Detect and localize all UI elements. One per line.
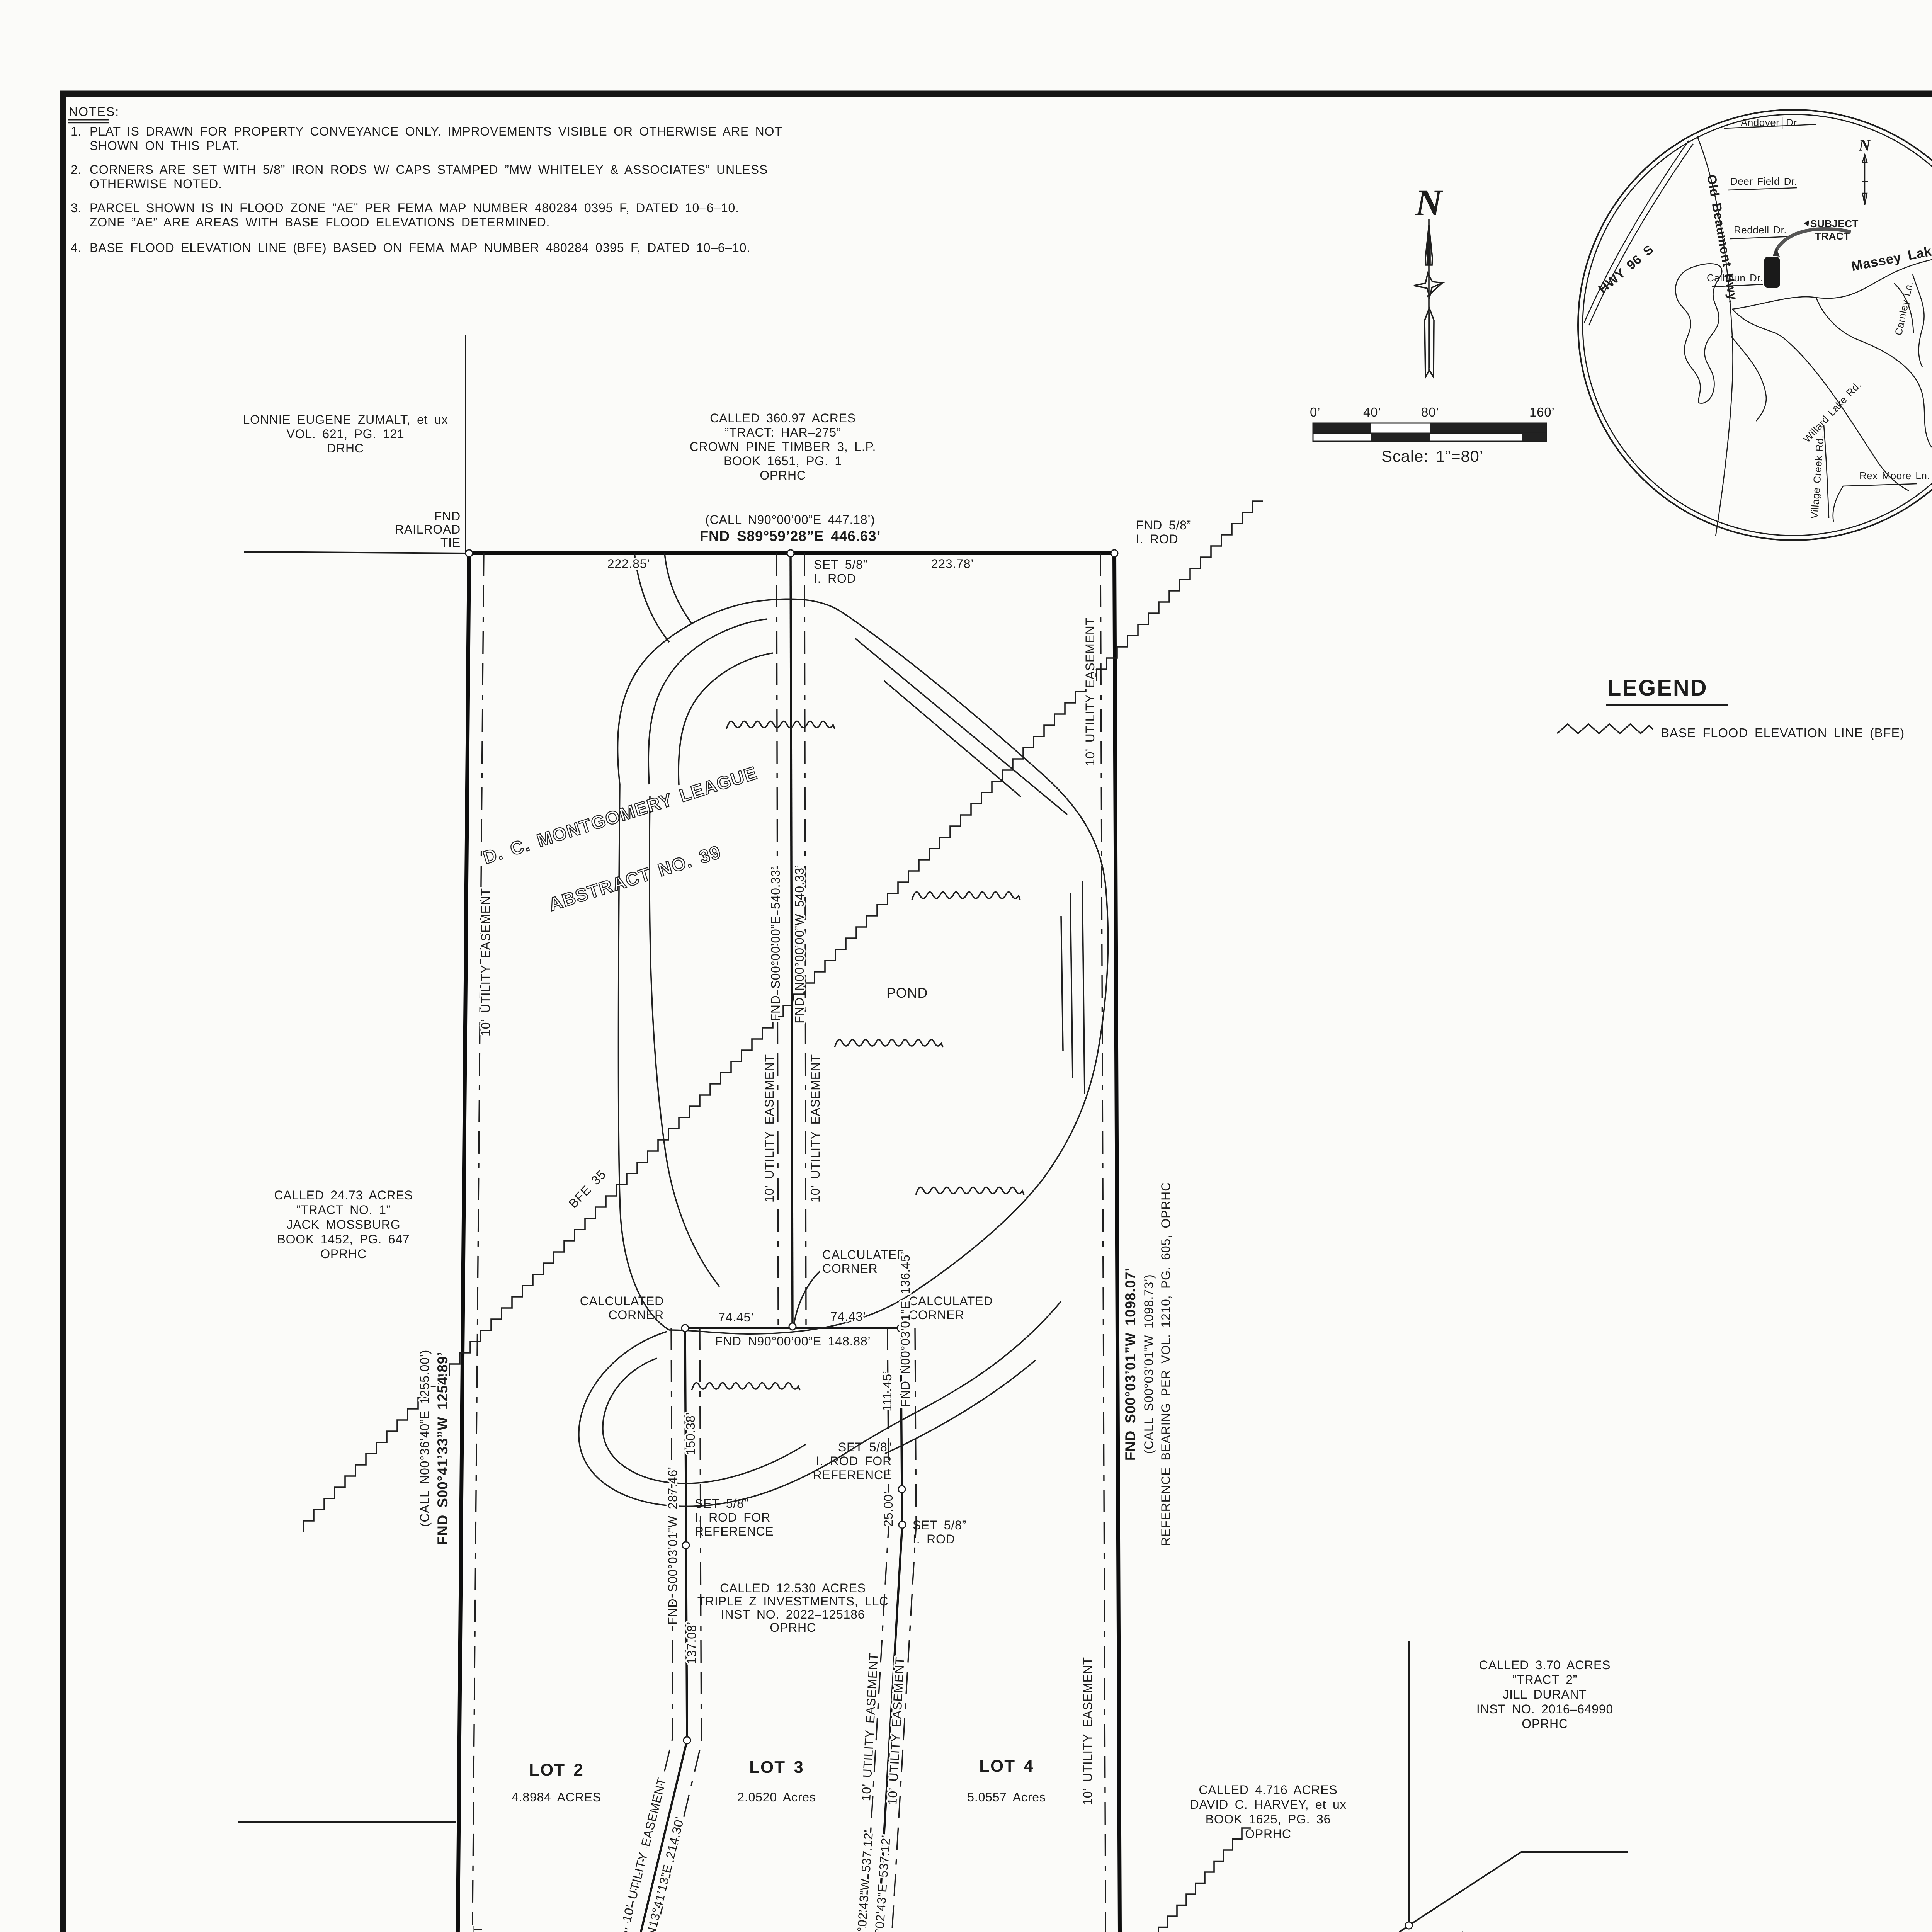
svg-text:10’ UTILITY EASEMENT: 10’ UTILITY EASEMENT bbox=[808, 1054, 822, 1202]
svg-text:(CALL N00°36’40”E 1255.00’): (CALL N00°36’40”E 1255.00’) bbox=[418, 1350, 432, 1527]
svg-text:10’ UTILITY EASEMENT: 10’ UTILITY EASEMENT bbox=[471, 1925, 485, 1932]
svg-text:FND S89°59’28”E 446.63’: FND S89°59’28”E 446.63’ bbox=[700, 528, 881, 544]
svg-text:SET 5/8”: SET 5/8” bbox=[838, 1440, 892, 1454]
svg-text:VOL. 621, PG. 121: VOL. 621, PG. 121 bbox=[287, 427, 405, 441]
svg-text:FND N00°03’01”E 136.45’: FND N00°03’01”E 136.45’ bbox=[898, 1252, 912, 1407]
svg-text:REFERENCE: REFERENCE bbox=[813, 1468, 892, 1482]
svg-text:BASE FLOOD ELEVATION LINE (BFE: BASE FLOOD ELEVATION LINE (BFE) BASED ON… bbox=[90, 241, 750, 255]
svg-text:CALCULATED: CALCULATED bbox=[580, 1294, 664, 1308]
svg-text:CALLED 3.70 ACRES: CALLED 3.70 ACRES bbox=[1479, 1658, 1611, 1672]
svg-text:10’ UTILITY EASEMENT: 10’ UTILITY EASEMENT bbox=[1083, 617, 1097, 766]
svg-text:FND S00°41’33”W 1254.89’: FND S00°41’33”W 1254.89’ bbox=[435, 1352, 451, 1545]
svg-text:10’ UTILITY EASEMENT: 10’ UTILITY EASEMENT bbox=[1081, 1657, 1095, 1805]
svg-text:10’ UTILITY EASEMENT: 10’ UTILITY EASEMENT bbox=[762, 1054, 776, 1202]
svg-text:POND: POND bbox=[886, 985, 928, 1001]
svg-text:I. ROD FOR: I. ROD FOR bbox=[695, 1510, 770, 1524]
svg-text:BOOK 1625, PG. 36: BOOK 1625, PG. 36 bbox=[1206, 1812, 1331, 1826]
svg-text:CALLED 4.716 ACRES: CALLED 4.716 ACRES bbox=[1199, 1783, 1337, 1797]
svg-text:”TRACT NO. 1”: ”TRACT NO. 1” bbox=[296, 1203, 391, 1217]
svg-text:CALCULATED: CALCULATED bbox=[909, 1294, 993, 1308]
svg-text:FND 5/8”: FND 5/8” bbox=[1136, 518, 1191, 532]
svg-text:I. ROD: I. ROD bbox=[913, 1532, 955, 1546]
svg-text:OPRHC: OPRHC bbox=[1522, 1717, 1568, 1731]
svg-text:BOOK 1651, PG. 1: BOOK 1651, PG. 1 bbox=[724, 454, 842, 468]
svg-text:1.: 1. bbox=[71, 124, 82, 138]
svg-text:137.08’: 137.08’ bbox=[685, 1622, 699, 1665]
svg-text:222.85’: 222.85’ bbox=[607, 557, 650, 571]
svg-text:N: N bbox=[1415, 182, 1444, 223]
svg-text:FND S00°03’01”W 287.46’: FND S00°03’01”W 287.46’ bbox=[666, 1466, 680, 1625]
svg-text:Rex Moore Ln.: Rex Moore Ln. bbox=[1859, 470, 1930, 481]
svg-text:DRHC: DRHC bbox=[327, 441, 364, 455]
svg-text:FND S00°03’01”W 1098.07’: FND S00°03’01”W 1098.07’ bbox=[1122, 1267, 1138, 1461]
svg-text:FND S00°00’00”E 540.33’: FND S00°00’00”E 540.33’ bbox=[769, 867, 782, 1022]
svg-text:4.: 4. bbox=[71, 241, 82, 255]
svg-text:CALCULATED: CALCULATED bbox=[822, 1248, 906, 1262]
svg-text:SET 5/8”: SET 5/8” bbox=[695, 1497, 748, 1510]
svg-text:JILL DURANT: JILL DURANT bbox=[1503, 1687, 1587, 1701]
svg-text:(CALL N90°00’00”E 447.18’): (CALL N90°00’00”E 447.18’) bbox=[705, 513, 875, 527]
svg-text:I. ROD FOR: I. ROD FOR bbox=[816, 1454, 892, 1468]
svg-text:”TRACT 2”: ”TRACT 2” bbox=[1512, 1673, 1577, 1687]
svg-text:CORNER: CORNER bbox=[822, 1262, 878, 1276]
svg-text:CALLED 12.530 ACRES: CALLED 12.530 ACRES bbox=[720, 1581, 866, 1595]
svg-text:PARCEL SHOWN IS IN FLOOD ZONE: PARCEL SHOWN IS IN FLOOD ZONE ”AE” PER F… bbox=[90, 201, 739, 215]
svg-text:Deer Field Dr.: Deer Field Dr. bbox=[1730, 175, 1797, 187]
svg-text:74.45’: 74.45’ bbox=[718, 1310, 754, 1324]
svg-text:25.00’: 25.00’ bbox=[881, 1491, 895, 1527]
svg-text:2.: 2. bbox=[71, 163, 82, 177]
svg-text:160’: 160’ bbox=[1529, 405, 1555, 419]
svg-text:LEGEND: LEGEND bbox=[1607, 675, 1708, 701]
svg-text:111.45’: 111.45’ bbox=[880, 1371, 894, 1412]
svg-text:Andover│Dr.: Andover│Dr. bbox=[1741, 117, 1799, 129]
svg-text:80’: 80’ bbox=[1421, 405, 1439, 419]
svg-text:DAVID C. HARVEY, et ux: DAVID C. HARVEY, et ux bbox=[1190, 1798, 1347, 1811]
svg-text:INST NO. 2016–64990: INST NO. 2016–64990 bbox=[1476, 1702, 1613, 1716]
svg-text:FND N90°00’00”E 148.88’: FND N90°00’00”E 148.88’ bbox=[715, 1334, 871, 1348]
svg-text:Calhoun Dr.: Calhoun Dr. bbox=[1707, 272, 1763, 284]
svg-text:5.0557 Acres: 5.0557 Acres bbox=[967, 1790, 1046, 1804]
svg-text:NOTES:: NOTES: bbox=[69, 105, 119, 119]
svg-text:OPRHC: OPRHC bbox=[320, 1247, 367, 1261]
svg-text:CALLED 24.73 ACRES: CALLED 24.73 ACRES bbox=[274, 1188, 413, 1202]
svg-text:CORNER: CORNER bbox=[609, 1308, 664, 1322]
svg-text:”TRACT: HAR–275”: ”TRACT: HAR–275” bbox=[725, 425, 841, 439]
svg-text:LONNIE EUGENE ZUMALT, et ux: LONNIE EUGENE ZUMALT, et ux bbox=[243, 413, 448, 427]
svg-text:2.0520 Acres: 2.0520 Acres bbox=[737, 1790, 816, 1804]
svg-text:Scale: 1”=80’: Scale: 1”=80’ bbox=[1381, 447, 1483, 465]
svg-text:0’: 0’ bbox=[1310, 405, 1320, 419]
svg-text:RAILROAD: RAILROAD bbox=[395, 522, 461, 536]
svg-text:FND 5/8”: FND 5/8” bbox=[1420, 1929, 1475, 1932]
svg-text:OPRHC: OPRHC bbox=[760, 468, 806, 482]
svg-text:40’: 40’ bbox=[1363, 405, 1381, 419]
svg-text:LOT 3: LOT 3 bbox=[749, 1758, 804, 1777]
svg-text:I. ROD: I. ROD bbox=[814, 571, 856, 585]
svg-text:FND: FND bbox=[434, 509, 461, 523]
svg-text:SET 5/8”: SET 5/8” bbox=[814, 558, 867, 571]
svg-text:PLAT IS DRAWN FOR PROPERTY CON: PLAT IS DRAWN FOR PROPERTY CONVEYANCE ON… bbox=[90, 124, 782, 138]
svg-text:ZONE ”AE” ARE AREAS WITH BASE: ZONE ”AE” ARE AREAS WITH BASE FLOOD ELEV… bbox=[90, 215, 550, 229]
svg-text:REFERENCE: REFERENCE bbox=[695, 1524, 774, 1538]
svg-text:LOT 2: LOT 2 bbox=[529, 1760, 584, 1779]
svg-text:SET 5/8”: SET 5/8” bbox=[913, 1518, 966, 1532]
svg-text:BASE FLOOD ELEVATION LINE (BFE: BASE FLOOD ELEVATION LINE (BFE) bbox=[1661, 726, 1905, 740]
svg-text:N: N bbox=[1858, 137, 1871, 155]
svg-text:(CALL S00°03’01”W 1098.73’): (CALL S00°03’01”W 1098.73’) bbox=[1142, 1274, 1156, 1454]
svg-text:TIE: TIE bbox=[440, 536, 461, 549]
svg-text:CORNERS ARE SET WITH 5/8” IRON: CORNERS ARE SET WITH 5/8” IRON RODS W/ C… bbox=[90, 163, 768, 177]
svg-text:150.38’: 150.38’ bbox=[684, 1412, 697, 1455]
svg-text:LOT 4: LOT 4 bbox=[979, 1757, 1034, 1776]
svg-text:TRIPLE Z INVESTMENTS, LLC: TRIPLE Z INVESTMENTS, LLC bbox=[697, 1594, 888, 1608]
svg-text:OPRHC: OPRHC bbox=[770, 1621, 816, 1634]
svg-text:JACK MOSSBURG: JACK MOSSBURG bbox=[287, 1218, 401, 1231]
svg-text:Reddell Dr.: Reddell Dr. bbox=[1734, 224, 1787, 236]
svg-text:CROWN PINE TIMBER 3, L.P.: CROWN PINE TIMBER 3, L.P. bbox=[690, 440, 876, 454]
svg-text:74.43’: 74.43’ bbox=[830, 1310, 866, 1323]
svg-text:OTHERWISE NOTED.: OTHERWISE NOTED. bbox=[90, 177, 222, 191]
svg-text:SHOWN ON THIS PLAT.: SHOWN ON THIS PLAT. bbox=[90, 139, 240, 153]
svg-text:10’ UTILITY EASEMENT: 10’ UTILITY EASEMENT bbox=[479, 888, 493, 1036]
svg-text:3.: 3. bbox=[71, 201, 82, 215]
svg-text:BOOK 1452, PG. 647: BOOK 1452, PG. 647 bbox=[277, 1232, 410, 1246]
svg-text:I. ROD: I. ROD bbox=[1136, 532, 1179, 546]
svg-text:REFERENCE BEARING PER VOL. 121: REFERENCE BEARING PER VOL. 1210, PG. 605… bbox=[1159, 1182, 1173, 1546]
svg-text:OPRHC: OPRHC bbox=[1245, 1827, 1291, 1841]
svg-text:CALLED 360.97 ACRES: CALLED 360.97 ACRES bbox=[710, 411, 856, 425]
svg-text:223.78’: 223.78’ bbox=[931, 557, 974, 571]
svg-text:FND N00°00’00”W 540.33’: FND N00°00’00”W 540.33’ bbox=[793, 864, 806, 1024]
svg-text:4.8984 ACRES: 4.8984 ACRES bbox=[512, 1790, 601, 1804]
svg-text:CORNER: CORNER bbox=[909, 1308, 964, 1322]
svg-text:INST NO. 2022–125186: INST NO. 2022–125186 bbox=[721, 1607, 865, 1621]
